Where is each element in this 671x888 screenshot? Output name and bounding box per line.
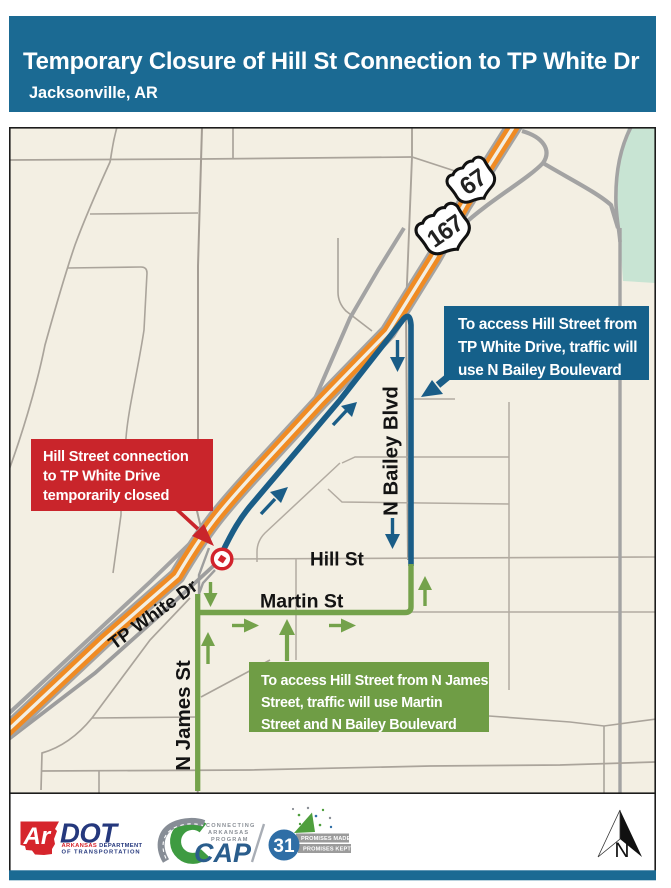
svg-text:to TP White Drive: to TP White Drive (43, 469, 160, 485)
svg-text:ARKANSAS: ARKANSAS (208, 830, 249, 836)
svg-text:Hill St: Hill St (310, 550, 365, 571)
svg-text:ARKANSAS DEPARTMENT: ARKANSAS DEPARTMENT (62, 843, 143, 849)
svg-text:To access Hill Street from: To access Hill Street from (458, 316, 637, 333)
svg-text:Street, traffic will use Marti: Street, traffic will use Martin (261, 695, 442, 711)
svg-text:temporarily closed: temporarily closed (43, 488, 169, 504)
svg-text:Ar: Ar (23, 823, 52, 850)
svg-text:N James St: N James St (172, 660, 195, 771)
svg-text:CAP: CAP (194, 838, 252, 868)
svg-text:N Bailey Blvd: N Bailey Blvd (381, 386, 403, 516)
svg-text:Hill Street connection: Hill Street connection (43, 449, 189, 465)
svg-text:Jacksonville, AR: Jacksonville, AR (29, 84, 158, 102)
svg-text:Martin St: Martin St (260, 591, 344, 613)
svg-text:To access Hill Street from N J: To access Hill Street from N James (261, 673, 488, 689)
svg-text:CONNECTING: CONNECTING (206, 823, 256, 829)
svg-text:Street and N Bailey Boulevard: Street and N Bailey Boulevard (261, 717, 457, 733)
svg-text:OF TRANSPORTATION: OF TRANSPORTATION (62, 850, 141, 856)
svg-text:Temporary Closure of Hill St C: Temporary Closure of Hill St Connection … (23, 48, 639, 75)
svg-text:use N Bailey Boulevard: use N Bailey Boulevard (458, 362, 621, 379)
svg-text:PROMISES MADE: PROMISES MADE (301, 836, 351, 842)
svg-text:31: 31 (273, 836, 295, 857)
svg-text:N: N (614, 839, 629, 862)
svg-text:PROMISES KEPT: PROMISES KEPT (303, 847, 351, 853)
svg-text:TP White Drive, traffic will: TP White Drive, traffic will (458, 339, 637, 356)
